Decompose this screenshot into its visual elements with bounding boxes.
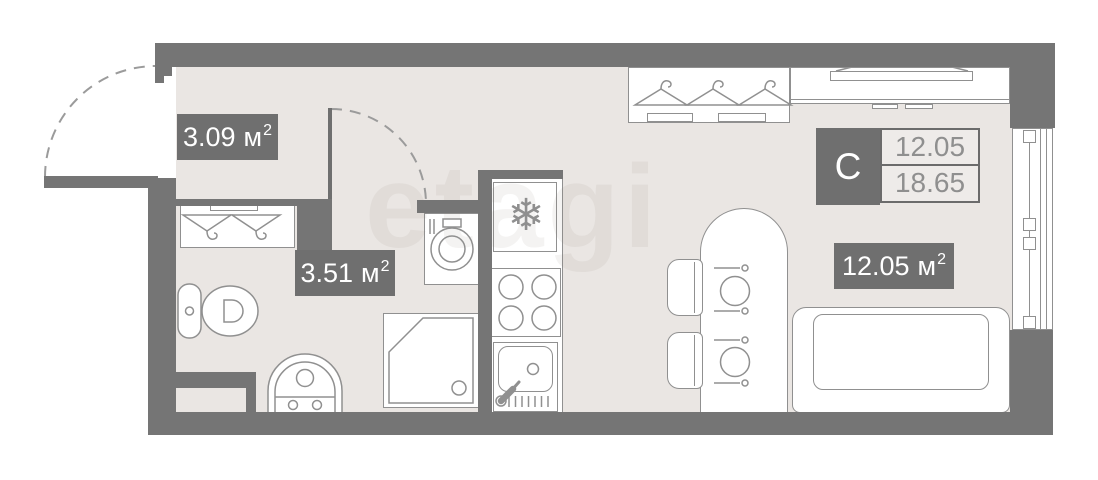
window-handle bbox=[1023, 237, 1036, 250]
bathroom-area-unit: м bbox=[361, 258, 380, 289]
living-area-value: 12.05 bbox=[842, 251, 910, 282]
wall-niche-top bbox=[176, 372, 256, 388]
window-glazing-line bbox=[1046, 129, 1047, 329]
watermark: etagi bbox=[365, 148, 660, 266]
bathroom-area-value: 3.51 bbox=[300, 258, 353, 289]
hallway-area-value: 3.09 bbox=[183, 122, 236, 153]
living-area-label: 12.05 м 2 bbox=[834, 243, 954, 289]
chair bbox=[667, 259, 703, 316]
hallway-area-unit: м bbox=[244, 122, 263, 153]
wall-entry-jamb-notch bbox=[155, 76, 164, 83]
tv-screen bbox=[830, 71, 973, 81]
wardrobe-shelf bbox=[647, 113, 693, 122]
apartment-type-badge: С bbox=[816, 128, 880, 205]
hallway-area-label: 3.09 м 2 bbox=[177, 114, 278, 160]
wall-corner-top-right bbox=[1010, 43, 1055, 128]
window-handle bbox=[1023, 218, 1036, 231]
tv-console-edge bbox=[791, 99, 1009, 100]
sofa-cushion bbox=[813, 314, 989, 390]
apartment-legend-values: 12.05 18.65 bbox=[880, 128, 980, 205]
wall-closet-pier bbox=[297, 199, 332, 250]
wall-entry-jamb bbox=[155, 43, 172, 76]
floor-plan: etagi bbox=[0, 0, 1098, 480]
window-glazing-line bbox=[1040, 129, 1041, 329]
wall-kitchen-stub bbox=[478, 170, 563, 179]
tv-console-tab bbox=[905, 104, 933, 109]
shower bbox=[383, 313, 479, 408]
wall-right-lower bbox=[1010, 330, 1053, 435]
living-area-unit: м bbox=[918, 251, 937, 282]
window-handle bbox=[1023, 130, 1036, 143]
entry-door-leaf bbox=[44, 176, 158, 188]
wall-bottom bbox=[148, 412, 1053, 435]
dining-table bbox=[700, 208, 788, 414]
chair bbox=[667, 332, 703, 389]
wardrobe-shelf bbox=[718, 113, 766, 122]
window bbox=[1012, 128, 1053, 330]
bathroom-area-label: 3.51 м 2 bbox=[295, 250, 395, 296]
wall-left bbox=[148, 178, 176, 435]
stove bbox=[491, 268, 561, 337]
apartment-legend: С 12.05 18.65 bbox=[816, 128, 980, 205]
entry-door-arc-icon bbox=[45, 66, 156, 177]
tv-console-tab bbox=[872, 104, 898, 109]
legend-area-top: 12.05 bbox=[880, 128, 980, 167]
chair-back bbox=[694, 262, 695, 313]
wall-kitchen-divider bbox=[478, 170, 492, 413]
wall-niche-side bbox=[246, 372, 256, 414]
window-handle bbox=[1023, 316, 1036, 329]
legend-area-bottom: 18.65 bbox=[880, 164, 980, 203]
chair-back bbox=[694, 335, 695, 386]
wall-top bbox=[155, 43, 1055, 67]
kitchen-sink-basin bbox=[498, 346, 553, 392]
